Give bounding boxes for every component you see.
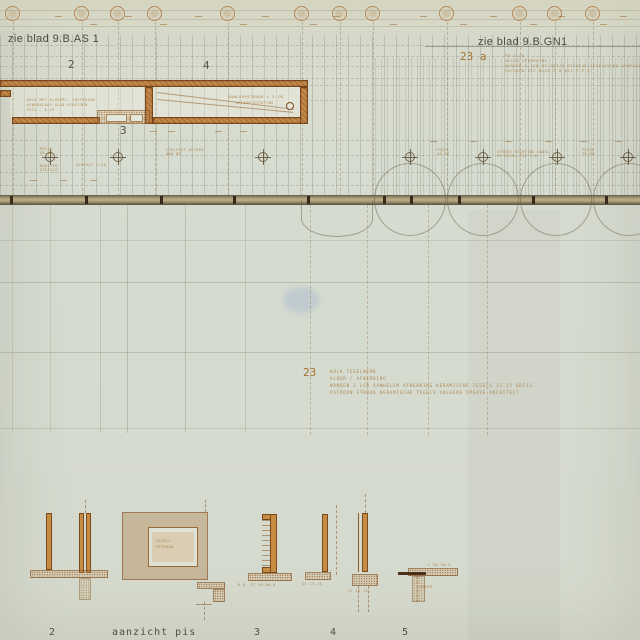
dashed-axis-line [368, 586, 369, 612]
detail-a-footing [30, 570, 108, 578]
tiny-annotation: GIETIJZ. [40, 168, 60, 172]
note-line: VLOER / AFWERKING [330, 376, 386, 381]
mid-grid-hline [0, 240, 640, 241]
dimension-mark [160, 24, 167, 25]
grid-label-2: 2 [68, 58, 75, 71]
dimension-mark [505, 141, 512, 142]
dimension-mark [333, 16, 340, 17]
arch-circle [520, 163, 592, 236]
drafting-hline [310, 85, 640, 86]
detail-c-web [270, 514, 277, 573]
match-line-label-right: zie blad 9.B.GN1 [478, 36, 568, 48]
survey-cross-part [620, 157, 636, 158]
tiny-annotation: PATROON [156, 545, 174, 549]
survey-cross-part [402, 157, 418, 158]
dimension-mark [90, 180, 97, 181]
dimension-mark [215, 131, 222, 132]
match-line-label-left: zie blad 9.B.AS 1 [8, 33, 99, 45]
dimension-mark [240, 24, 247, 25]
grid-label-4: 4 [203, 59, 210, 72]
note-line: WANDEN 2 LGN AANHELEN AFWERKING KERAMISC… [330, 383, 533, 388]
tiny-annotation: ST 15.15 [302, 582, 322, 586]
dimension-mark [545, 141, 552, 142]
tiny-annotation: B.B. ST 10.60.8 [238, 583, 276, 587]
ground-band-tick [233, 196, 236, 204]
survey-cross-part [110, 157, 126, 158]
plan-end-wall [300, 87, 308, 124]
drafting-hline [0, 140, 640, 141]
tiny-annotation: AANLOOPSTROOK ± 3 CM [228, 95, 283, 99]
survey-cross-part [549, 157, 565, 158]
tiny-annotation: ANKER [420, 585, 433, 589]
detail-e-post [362, 513, 368, 572]
dimension-mark [470, 141, 477, 142]
detail-e-liner [358, 513, 359, 572]
detail-a-post-3 [86, 513, 91, 573]
recess-panel-2 [130, 114, 143, 122]
dimension-line [0, 26, 640, 27]
dimension-mark [490, 16, 497, 17]
tiny-annotation: 30.30 [582, 152, 595, 156]
detail-label-3: 3 [120, 124, 127, 137]
grid-bubble [110, 6, 125, 21]
note-line: KOLK TEGELWERK [330, 369, 377, 374]
arch-circle [447, 163, 519, 236]
detail-c-ladder-hatch [262, 520, 270, 567]
detail-a-pier [79, 578, 91, 600]
dimension-mark [262, 16, 269, 17]
survey-cross-marker [110, 149, 126, 165]
survey-cross-marker [255, 149, 271, 165]
dimension-mark [240, 131, 247, 132]
dashed-axis-line [365, 494, 366, 513]
drafting-hline [310, 100, 640, 101]
grid-leader-line [520, 22, 521, 196]
recess-panel-1 [106, 114, 127, 122]
tiny-annotation: OP RIOOL ZIE 9.B [497, 154, 537, 158]
detail-d-post [322, 514, 328, 572]
grid-bubble [332, 6, 347, 21]
grid-bubble [294, 6, 309, 21]
mid-grid-hline [0, 428, 640, 429]
grid-bubble [365, 6, 380, 21]
detail-a-post-2 [79, 513, 84, 573]
tiny-annotation: TEGELS [156, 539, 171, 543]
note-23a-number: 23 a [460, 50, 487, 63]
detail-b-ledge [197, 582, 225, 589]
note-line: KOLOM AFWERKING [505, 59, 548, 63]
dashed-axis-line [358, 586, 359, 612]
note-line: PATROON ZIE BLAD 9.B N13 T.P.V. [505, 69, 593, 73]
grid-leader-line [340, 22, 341, 196]
detail-e-block [352, 574, 378, 586]
dimension-mark [195, 16, 202, 17]
dimension-line [0, 10, 640, 11]
dimension-mark [600, 24, 607, 25]
plan-wall-stub-left [0, 90, 11, 97]
grid-bubble [220, 6, 235, 21]
grid-leader-line [593, 22, 594, 196]
ground-band-tick [85, 196, 88, 204]
bottom-label-5: 5 [402, 627, 409, 638]
grid-bubble [74, 6, 89, 21]
grid-bubble [585, 6, 600, 21]
note-23-number: 23 [303, 366, 316, 379]
tiny-annotation: AFLOOP RICHTING [236, 101, 274, 105]
plan-top-wall [0, 80, 308, 87]
tiny-annotation: L 50.50.5 [428, 563, 451, 567]
drafting-hline [0, 56, 640, 57]
detail-f-angle [398, 572, 426, 575]
dashed-axis-line [336, 505, 337, 575]
dimension-mark [580, 141, 587, 142]
dimension-line [0, 19, 640, 20]
dimension-mark [125, 16, 132, 17]
tiny-annotation: HWA 80 [166, 152, 181, 156]
dashed-axis-line [204, 602, 205, 620]
tiny-annotation: 30.30 [40, 151, 53, 155]
bottom-label-aanzicht-pis: aanzicht pis [112, 627, 196, 638]
drafting-hline [0, 78, 640, 79]
dimension-mark [310, 24, 317, 25]
survey-cross-part [255, 157, 271, 158]
grid-bubble [547, 6, 562, 21]
detail-a-post-1 [46, 513, 52, 570]
dimension-mark [620, 16, 627, 17]
arch-half-circle [301, 200, 373, 237]
bottom-label-4: 4 [330, 627, 337, 638]
tiny-annotation: AFWERKLAAG GLAD AFREIJEN [27, 103, 87, 107]
detail-c-footing [248, 573, 292, 581]
grid-leader-line [447, 22, 448, 196]
dimension-mark [558, 16, 565, 17]
drain-circle [286, 102, 294, 110]
dimension-mark [430, 141, 437, 142]
plan-bottom-wall-left [12, 117, 100, 124]
dimension-mark [55, 16, 62, 17]
note-line: PB GLAD [505, 54, 525, 58]
paper-shade-column [468, 210, 560, 640]
dimension-mark [168, 131, 175, 132]
dashed-axis-line [205, 500, 206, 512]
dimension-mark [615, 141, 622, 142]
mid-grid-hline [0, 282, 640, 283]
survey-cross-part [475, 157, 491, 158]
dashed-axis-line [85, 500, 86, 513]
bottom-label-3: 3 [254, 627, 261, 638]
paper-stain-blue [283, 287, 319, 313]
dimension-mark [30, 180, 37, 181]
grid-leader-line [373, 22, 374, 196]
plan-room-right [153, 87, 300, 117]
grid-bubble [512, 6, 527, 21]
detail-b-ledge-leg [213, 589, 225, 602]
tiny-annotation: AFSCHOT 1:50 [76, 163, 106, 167]
dimension-mark [420, 16, 427, 17]
grid-bubble [5, 6, 20, 21]
drafting-hline [0, 155, 640, 156]
dashed-axis-line [417, 576, 418, 602]
plan-bottom-wall-right [153, 117, 308, 124]
survey-cross-part [42, 157, 58, 158]
detail-f-leg [412, 576, 425, 602]
bottom-label-2: 2 [49, 627, 56, 638]
tiny-annotation: PEIL - 0.45 [27, 108, 55, 112]
dimension-mark [150, 131, 157, 132]
ground-band-tick [160, 196, 163, 204]
dimension-mark [390, 24, 397, 25]
arch-circle [374, 163, 446, 236]
mid-grid-hline [0, 352, 640, 353]
dimension-mark [60, 180, 67, 181]
ground-band-tick [10, 196, 13, 204]
drawing-sheet: zie blad 9.B.AS 1 zie blad 9.B.GN1 23 a … [0, 0, 640, 640]
dimension-mark [460, 24, 467, 25]
tiny-annotation: KOLK MET VLOERPL. INSTORTEN [27, 98, 95, 102]
detail-d-footing [305, 572, 331, 580]
grid-bubble [147, 6, 162, 21]
grid-bubble [439, 6, 454, 21]
dimension-mark [90, 24, 97, 25]
tiny-annotation: 30.30 [437, 152, 450, 156]
note-line: PATROON STROOK KERAMISCHE TEGELS VOLGENS… [330, 390, 519, 395]
dimension-mark [530, 24, 537, 25]
note-line: WANDEN 2 LGN KZ GRIJS GEVOEGD OPGELEVERD… [505, 64, 640, 68]
